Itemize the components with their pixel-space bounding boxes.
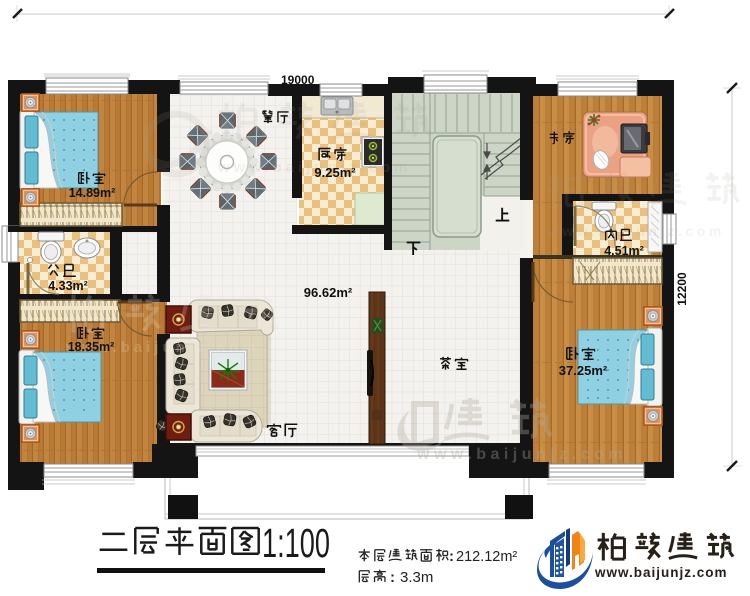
- svg-text::: :: [449, 548, 454, 565]
- svg-text::: :: [390, 569, 395, 586]
- svg-text:19000: 19000: [281, 73, 315, 87]
- svg-text:37.25m²: 37.25m²: [559, 363, 608, 378]
- svg-text:www.baijunjz.com: www.baijunjz.com: [594, 565, 728, 580]
- svg-text:1:100: 1:100: [262, 520, 330, 566]
- svg-text:212.12m²: 212.12m²: [456, 549, 517, 565]
- svg-text:96.62m²: 96.62m²: [304, 285, 353, 300]
- svg-text:www.baijunjz.com: www.baijunjz.com: [416, 446, 627, 463]
- svg-text:www.baijunjz.com: www.baijunjz.com: [547, 223, 725, 239]
- svg-text:4.51m²: 4.51m²: [604, 244, 644, 258]
- svg-text:12200: 12200: [675, 272, 689, 306]
- svg-text:4.33m²: 4.33m²: [48, 279, 88, 293]
- svg-text:9.25m²: 9.25m²: [314, 165, 356, 180]
- svg-text:14.89m²: 14.89m²: [69, 186, 116, 200]
- svg-text:3.3m: 3.3m: [400, 569, 433, 586]
- svg-text:18.35m²: 18.35m²: [68, 340, 115, 354]
